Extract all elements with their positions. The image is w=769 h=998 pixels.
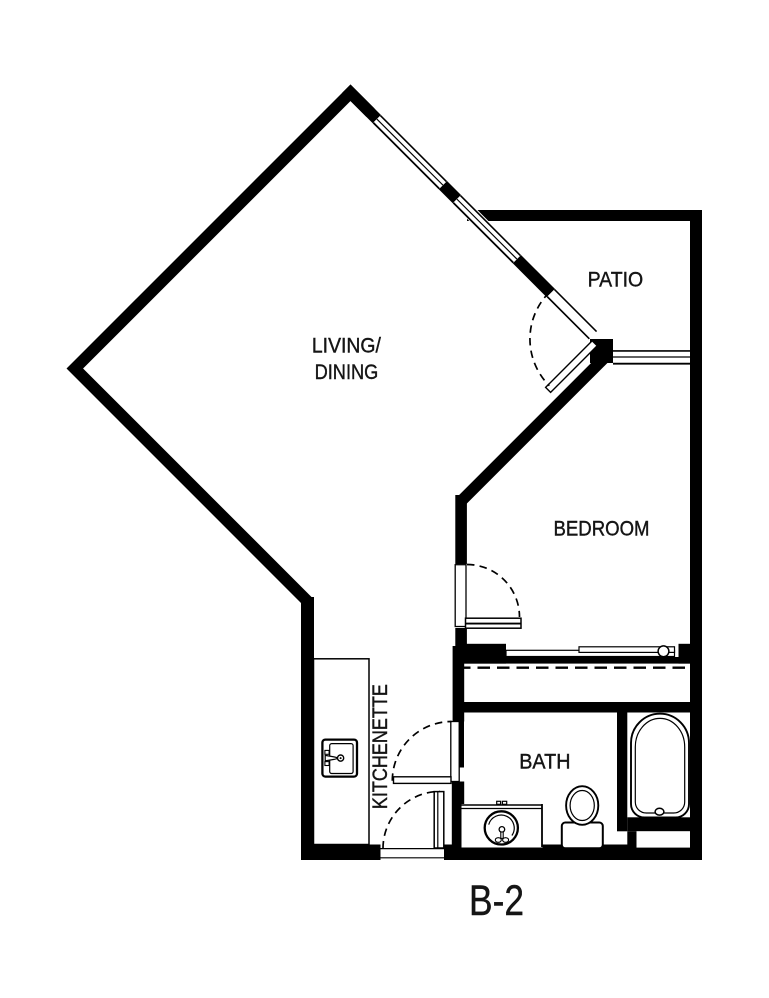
svg-text:LIVING/: LIVING/ <box>312 335 381 358</box>
svg-text:PATIO: PATIO <box>588 268 644 291</box>
svg-text:BATH: BATH <box>519 751 570 774</box>
svg-text:BEDROOM: BEDROOM <box>554 518 650 541</box>
svg-text:DINING: DINING <box>315 361 379 384</box>
svg-text:KITCHENETTE: KITCHENETTE <box>369 684 392 809</box>
svg-text:B-2: B-2 <box>469 878 524 925</box>
